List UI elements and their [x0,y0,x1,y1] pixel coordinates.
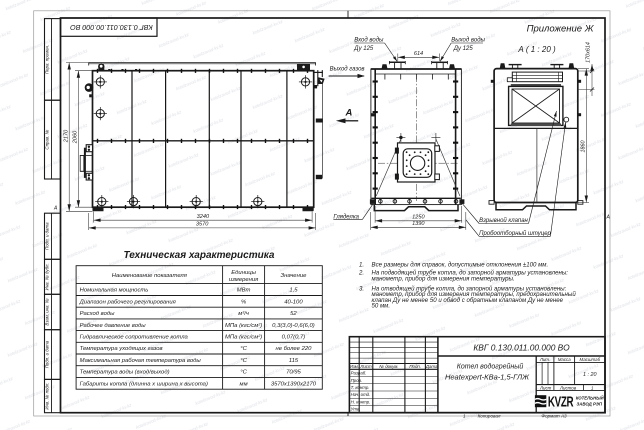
svg-text:Heatexpert-КВа-1,5-ГЛЖ: Heatexpert-КВа-1,5-ГЛЖ [445,373,530,382]
svg-text:Масса: Масса [558,357,572,362]
svg-text:1390: 1390 [412,221,425,227]
svg-text:KVZR: KVZR [548,395,574,411]
svg-text:Выход газов: Выход газов [330,66,365,72]
svg-text:Все размеры для справок, допус: Все размеры для справок, допустимые откл… [372,262,549,269]
svg-text:КВГ 0.130.011.00.000 ВО: КВГ 0.130.011.00.000 ВО [70,23,153,32]
svg-text:КВГ 0.130.011.00.000 ВО: КВГ 0.130.011.00.000 ВО [473,342,570,352]
svg-text:Подп.: Подп. [409,364,421,369]
svg-text:Пров.: Пров. [351,378,363,383]
svg-text:мм: мм [240,381,248,387]
svg-text:Взрывной клапан: Взрывной клапан [479,217,528,224]
svg-text:Копировал: Копировал [478,414,501,419]
svg-text:%: % [241,300,246,306]
svg-text:3570х1390х2170: 3570х1390х2170 [271,381,317,387]
svg-text:2.: 2. [358,270,364,277]
svg-text:°С: °С [240,370,247,376]
svg-text:3.: 3. [359,286,364,293]
svg-text:Ду 125: Ду 125 [353,46,374,52]
svg-text:Максимальная рабочая температу: Максимальная рабочая температура воды [80,358,202,364]
svg-text:МВт: МВт [237,288,251,294]
svg-text:3570: 3570 [196,222,209,228]
svg-text:Утв.: Утв. [351,407,361,412]
svg-text:Техническая характеристика: Техническая характеристика [124,250,275,261]
svg-text:Единицы: Единицы [231,270,256,276]
svg-text:614: 614 [414,51,423,57]
svg-text:0,3(3,0)-0,6(6,0): 0,3(3,0)-0,6(6,0) [272,323,315,329]
svg-text:50 мм.: 50 мм. [372,303,391,310]
svg-text:°С: °С [240,358,247,364]
svg-text:Лит.: Лит. [539,357,550,362]
svg-text:КОТЕЛЬНЫЙ: КОТЕЛЬНЫЙ [576,395,605,400]
svg-text:Подп. и дата: Подп. и дата [45,340,50,368]
svg-text:клапан Ду не менее 50 и обвод: клапан Ду не менее 50 и обвод с обратным… [372,297,564,304]
svg-text:1250: 1250 [412,215,425,221]
svg-text:Нач. отд.: Нач. отд. [351,392,371,397]
svg-text:Н. контр.: Н. контр. [351,400,371,405]
svg-text:Перв. примен.: Перв. примен. [45,45,50,74]
svg-text:70/95: 70/95 [286,370,301,376]
svg-text:Т. контр.: Т. контр. [351,385,370,390]
svg-text:Подп. и дата: Подп. и дата [45,222,50,250]
svg-text:170х614: 170х614 [585,42,591,63]
svg-text:Взам. инв. №: Взам. инв. № [45,298,50,325]
svg-text:Габариты котла (длинна х ширин: Габариты котла (длинна х ширина х высота… [80,381,208,387]
svg-text:Расход воды: Расход воды [80,311,116,317]
svg-text:Рабочее давление воды: Рабочее давление воды [80,323,147,329]
svg-text:Инв. № подл.: Инв. № подл. [45,382,50,409]
svg-text:Наименование показателя: Наименование показателя [112,273,188,279]
svg-text:Дата: Дата [425,364,438,369]
svg-text:Значение: Значение [281,273,308,279]
svg-text:Котел водогрейный: Котел водогрейный [457,362,524,370]
svg-text:измерения: измерения [229,277,259,283]
svg-text:Температура уходящих газов: Температура уходящих газов [80,346,163,352]
svg-text:Ду 125: Ду 125 [453,46,474,52]
svg-text:Температура воды (вход/выход): Температура воды (вход/выход) [80,370,170,376]
svg-text:А: А [53,206,58,212]
svg-text:Приложение Ж: Приложение Ж [527,24,595,35]
svg-text:А: А [606,215,611,221]
svg-text:№ докум.: № докум. [379,364,398,369]
svg-text:МПа (кгс/см²): МПа (кгс/см²) [225,323,262,329]
svg-text:1.: 1. [359,262,364,269]
svg-text:Изм.: Изм. [350,364,359,369]
svg-text:115: 115 [289,358,299,364]
svg-text:52: 52 [290,311,297,317]
svg-text:Формат А3: Формат А3 [541,414,567,419]
svg-text:ЗАВОД РЭП: ЗАВОД РЭП [577,401,603,406]
svg-text:Диапазон рабочего регулировани: Диапазон рабочего регулирования [79,300,177,306]
svg-text:Пробоотборный штуцер: Пробоотборный штуцер [479,230,551,237]
svg-text:3240: 3240 [197,214,210,220]
svg-text:1: 1 [463,414,466,419]
svg-text:2170: 2170 [63,129,69,143]
svg-text:°С: °С [240,346,247,352]
svg-text:1 : 20: 1 : 20 [583,372,597,378]
svg-text:1,5: 1,5 [289,288,298,294]
svg-text:40-100: 40-100 [284,300,303,306]
svg-text:0,07(0,7): 0,07(0,7) [282,335,306,341]
svg-text:Листов: Листов [559,386,577,391]
svg-text:Лист: Лист [359,364,372,369]
svg-text:Номинальная мощность: Номинальная мощность [80,288,149,294]
svg-text:А ( 1 : 20 ): А ( 1 : 20 ) [517,45,556,54]
svg-text:не более 220: не более 220 [275,346,312,352]
svg-text:Лист: Лист [539,386,552,391]
svg-text:Справ. №: Справ. № [45,129,50,149]
svg-text:манометр, прибор для измерения: манометр, прибор для измерения температу… [372,275,515,282]
svg-text:1860: 1860 [581,141,587,153]
svg-text:м³/ч: м³/ч [238,311,249,317]
svg-text:Инв. № дубл.: Инв. № дубл. [45,263,50,290]
svg-text:Разраб.: Разраб. [351,371,367,376]
svg-text:А: А [345,108,353,119]
svg-text:2060: 2060 [73,130,79,144]
svg-text:Гидравлическое сопротивление к: Гидравлическое сопротивление котла [80,335,189,341]
svg-text:МПа (кгс/см²): МПа (кгс/см²) [225,335,262,341]
svg-text:Масштаб: Масштаб [580,357,601,362]
